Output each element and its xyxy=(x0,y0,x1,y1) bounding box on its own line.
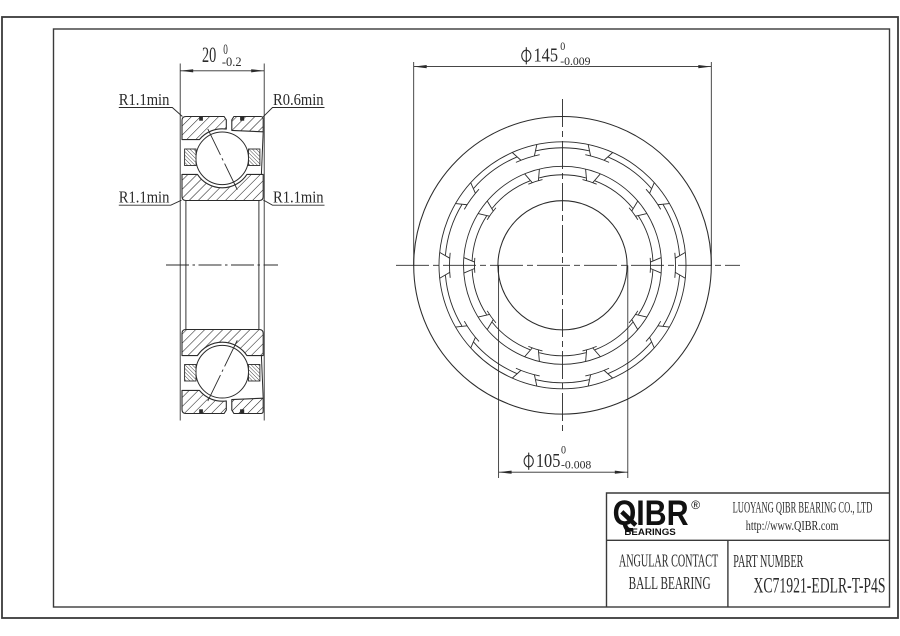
svg-text:http://www.QIBR.com: http://www.QIBR.com xyxy=(746,518,839,533)
svg-text:R1.1min: R1.1min xyxy=(119,90,170,109)
svg-text:-0.008: -0.008 xyxy=(561,458,591,472)
svg-text:R1.1min: R1.1min xyxy=(273,188,324,207)
svg-text:-0.2: -0.2 xyxy=(222,54,242,69)
svg-text:R1.1min: R1.1min xyxy=(119,188,170,207)
svg-text:105: 105 xyxy=(536,450,561,472)
svg-text:BALL BEARING: BALL BEARING xyxy=(629,573,711,593)
svg-text:0: 0 xyxy=(560,41,565,53)
svg-text:-0.009: -0.009 xyxy=(560,54,590,68)
svg-text:145: 145 xyxy=(534,44,559,66)
svg-text:PART NUMBER: PART NUMBER xyxy=(733,551,803,571)
svg-text:0: 0 xyxy=(561,445,566,457)
svg-text:BEARINGS: BEARINGS xyxy=(624,527,675,537)
svg-text:®: ® xyxy=(691,498,700,512)
svg-text:R0.6min: R0.6min xyxy=(273,90,324,109)
svg-text:LUOYANG QIBR BEARING CO., LTD: LUOYANG QIBR BEARING CO., LTD xyxy=(733,499,873,516)
svg-text:20: 20 xyxy=(202,42,216,67)
svg-text:XC71921-EDLR-T-P4S: XC71921-EDLR-T-P4S xyxy=(754,573,886,598)
svg-text:ANGULAR CONTACT: ANGULAR CONTACT xyxy=(619,551,718,571)
